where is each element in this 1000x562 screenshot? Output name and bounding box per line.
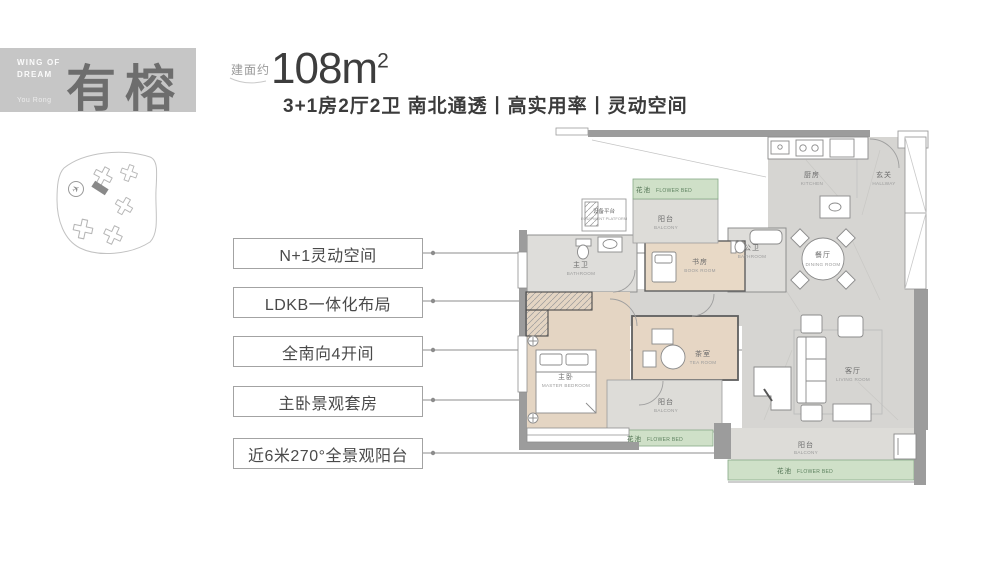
room-label-zh: 花池 [627, 434, 642, 443]
building-outline [119, 163, 140, 184]
wall-top [588, 130, 870, 137]
building-outline [112, 194, 135, 217]
floor-plan: 花池FLOWER BED 阳台 BALCONY 设备平台 EQUIPMENT P… [518, 128, 928, 485]
balcony-mid-floor [607, 380, 722, 432]
room-label-zh: 阳台 [658, 397, 674, 406]
room-label-en: FLOWER BED [797, 469, 833, 475]
room-label-en: BATHROOM [738, 254, 767, 259]
bed-icon [536, 350, 596, 413]
room-label-en: MASTER BEDROOM [542, 383, 590, 388]
callout-label: 全南向4开间 [282, 340, 374, 364]
brand-tagline: WING OF DREAM [17, 57, 65, 80]
island-sink-icon [820, 196, 850, 218]
brand-name-en: You Rong [17, 97, 52, 104]
room-label-en: FLOWER BED [647, 437, 683, 443]
room-label-en: DINING ROOM [806, 262, 841, 267]
room-label-en: EQUIPMENT PLATFORM [581, 216, 627, 221]
side-chair-icon [838, 316, 863, 337]
toilet-icon [731, 241, 745, 253]
tea-room-floor [632, 316, 738, 380]
room-label-en: TEA ROOM [690, 360, 717, 365]
callout-label: 主卧景观套房 [278, 390, 377, 414]
sofa-icon [797, 337, 826, 403]
room-label-zh: 主卧 [558, 372, 574, 381]
room-label-zh: 茶室 [695, 349, 711, 358]
balcony-top-floor [633, 199, 718, 243]
area-number: 108m [271, 44, 377, 93]
callout-flex-space: N+1灵动空间 [233, 238, 423, 269]
coffee-table-icon [833, 404, 871, 421]
daybed-icon [652, 252, 676, 282]
callout-ldkb-layout: LDKB一体化布局 [233, 287, 423, 318]
void-outline [592, 140, 766, 177]
room-label-en: KITCHEN [801, 181, 823, 186]
wall-block-mid [714, 423, 731, 459]
room-label-en: BATHROOM [567, 271, 596, 276]
armchair-icon [801, 315, 822, 333]
sink-icon [598, 237, 622, 252]
window-right-strip [905, 137, 926, 289]
room-label-en: BOOK ROOM [684, 268, 716, 273]
kitchen-sink-icon [771, 141, 789, 154]
room-label-zh: 餐厅 [815, 250, 831, 259]
window-left-1 [518, 252, 527, 288]
area-value: 108m2 [271, 44, 388, 94]
window-left-2 [518, 336, 527, 392]
site-map-sketch: ✈ [57, 152, 157, 253]
room-label-zh: 公卫 [744, 244, 760, 252]
layout-subtitle: 3+1房2厅2卫 南北通透丨高实用率丨灵动空间 [283, 91, 688, 118]
building-outline [101, 223, 125, 247]
room-label-en: BALCONY [654, 408, 678, 413]
room-label-en: BALCONY [654, 225, 678, 230]
callout-label: 近6米270°全景观阳台 [248, 442, 408, 466]
balcony-right-floor [731, 428, 914, 462]
bathtub-icon [750, 230, 782, 244]
stove-icon [796, 140, 823, 156]
equipment-platform [582, 199, 626, 231]
room-label-zh: 客厅 [845, 366, 861, 375]
callout-south-facing: 全南向4开间 [233, 336, 423, 367]
room-label-zh: 花池 [636, 185, 651, 194]
building-outline [72, 218, 94, 240]
brand-logo: WING OF DREAM You Rong 有榕 [0, 48, 196, 112]
wall-right [914, 289, 928, 430]
callout-label: N+1灵动空间 [279, 242, 376, 266]
wall-stub-topleft [556, 128, 588, 135]
room-label-en: FLOWER BED [656, 188, 692, 194]
callout-label: LDKB一体化布局 [265, 291, 391, 315]
area-superscript: 2 [377, 49, 388, 72]
prefix-underline [230, 78, 266, 83]
callout-panorama-balcony: 近6米270°全景观阳台 [233, 438, 423, 469]
room-label-zh: 阳台 [658, 214, 674, 223]
cabinet-icon [830, 139, 854, 157]
brand-name-zh: 有榕 [66, 49, 184, 121]
room-label-en: BALCONY [794, 450, 818, 455]
ac-unit-icon [894, 434, 916, 459]
room-label-zh: 玄关 [876, 170, 892, 179]
room-label-zh: 设备平台 [593, 207, 616, 215]
callout-master-suite: 主卧景观套房 [233, 386, 423, 417]
room-label-en: LIVING ROOM [836, 377, 870, 382]
room-label-zh: 阳台 [798, 440, 814, 449]
wall-bottom-left [519, 442, 639, 450]
room-label-zh: 主卫 [573, 260, 589, 269]
room-label-zh: 花池 [777, 466, 792, 475]
armchair-icon [801, 405, 822, 421]
room-label-zh: 书房 [692, 257, 708, 266]
room-label-en: HALLWAY [872, 181, 895, 186]
room-label-zh: 厨房 [804, 170, 820, 179]
area-prefix-label: 建面约 [231, 61, 270, 78]
room-label-kitchen: 厨房 KITCHEN [801, 170, 823, 186]
floorplan-poster: ✈ [0, 0, 1000, 562]
